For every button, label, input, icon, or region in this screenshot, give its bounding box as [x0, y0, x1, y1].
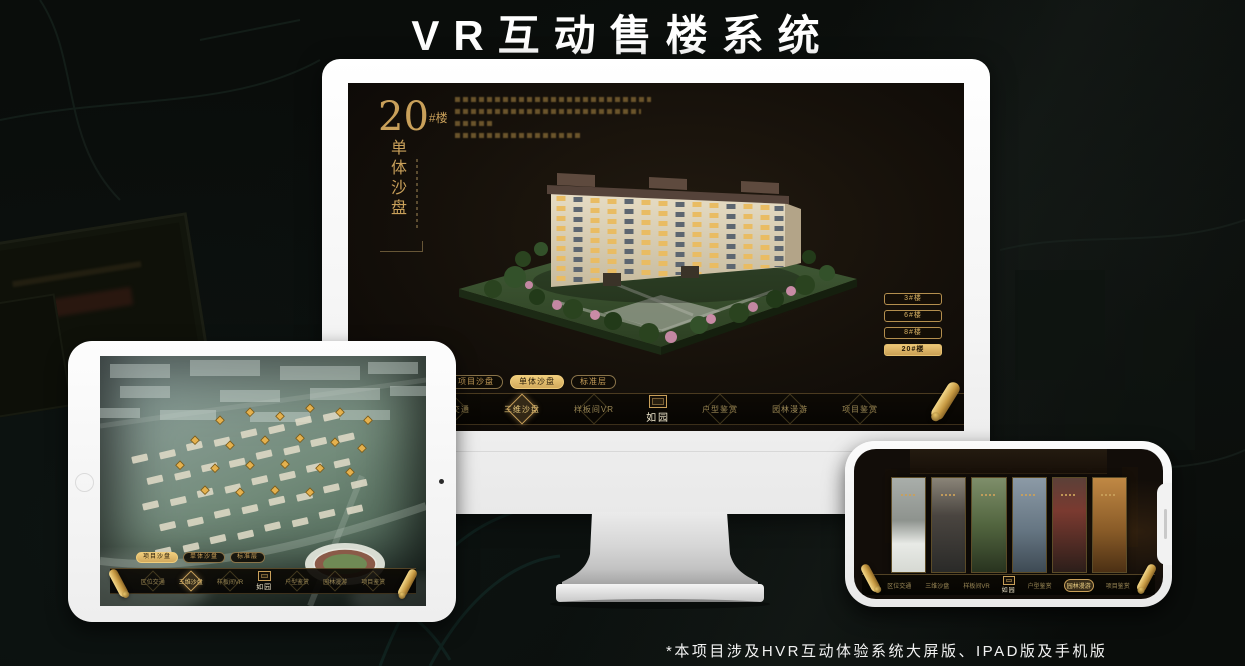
brand-logo-icon: [649, 395, 667, 408]
phone-notch: [1157, 483, 1172, 565]
brand-logo[interactable]: 如园: [1002, 576, 1016, 594]
phone-bottom-nav: 区位交通 三维沙盘 样板间VR 如园 户型鉴赏 园林漫游 项目鉴赏: [862, 574, 1155, 595]
nav-item-garden-roam[interactable]: 园林漫游: [322, 576, 348, 587]
block-number-suffix: #楼: [429, 111, 448, 125]
page-title: VR互动售楼系统: [0, 2, 1245, 63]
block-subtitle: 单体沙盘: [384, 139, 408, 223]
tablet-mockup: 项目沙盘 单体沙盘 标准层 区位交通 三维沙盘 样板间VR 如园 户型鉴赏 园林…: [68, 341, 456, 622]
nav-item-project-gallery[interactable]: 项目鉴赏: [360, 576, 386, 587]
floor-selector: 3#楼 6#楼 8#楼 20#楼: [884, 293, 942, 361]
tablet-bottom-nav: 区位交通 三维沙盘 样板间VR 如园 户型鉴赏 园林漫游 项目鉴赏: [110, 568, 416, 594]
scene-panel-garden[interactable]: [971, 477, 1006, 573]
brand-logo-icon: [258, 571, 271, 581]
nav-item-3d-sandtable[interactable]: 三维沙盘: [178, 576, 204, 587]
scene-panel-lounge[interactable]: [1052, 477, 1087, 573]
scene-panel-building[interactable]: [1012, 477, 1047, 573]
nav-item-floorplans[interactable]: 户型鉴赏: [284, 576, 310, 587]
nav-item-3d-sandtable[interactable]: 三维沙盘: [923, 580, 951, 591]
tablet-home-button[interactable]: [75, 473, 94, 492]
interior-beam: [910, 449, 1108, 474]
brand-logo[interactable]: 如园: [256, 571, 272, 592]
brand-logo-text: 如园: [1002, 585, 1016, 594]
floor-button-8[interactable]: 8#楼: [884, 327, 942, 339]
nav-item-3d-sandtable[interactable]: 三维沙盘: [502, 402, 542, 417]
scene-panel-interior[interactable]: [931, 477, 966, 573]
subtab-standard-floor[interactable]: 标准层: [571, 375, 616, 389]
floor-button-3[interactable]: 3#楼: [884, 293, 942, 305]
phone-mockup: 区位交通 三维沙盘 样板间VR 如园 户型鉴赏 园林漫游 项目鉴赏: [845, 441, 1172, 607]
nav-item-project-gallery[interactable]: 项目鉴赏: [840, 402, 880, 417]
scene-panel-study[interactable]: [1092, 477, 1127, 573]
nav-item-showroom-vr[interactable]: 样板间VR: [216, 576, 244, 587]
tablet-subtabs: 项目沙盘 单体沙盘 标准层: [136, 552, 265, 563]
nav-item-location[interactable]: 区位交通: [885, 580, 913, 591]
subtab-single-sandtable[interactable]: 单体沙盘: [510, 375, 564, 389]
subtab-project-sandtable[interactable]: 项目沙盘: [449, 375, 503, 389]
nav-item-project-gallery[interactable]: 项目鉴赏: [1104, 580, 1132, 591]
tablet-subtab-project-sandtable[interactable]: 项目沙盘: [136, 552, 178, 563]
nav-item-garden-roam[interactable]: 园林漫游: [770, 402, 810, 417]
scene-panel-gallery: [891, 477, 1127, 573]
tablet-subtab-standard-floor[interactable]: 标准层: [230, 552, 265, 563]
nav-item-location[interactable]: 区位交通: [140, 576, 166, 587]
floor-button-20[interactable]: 20#楼: [884, 344, 942, 356]
block-number: 20: [378, 94, 429, 140]
block-headline: 20#楼 单体沙盘: [378, 97, 453, 223]
scroll-menu-icon[interactable]: [929, 380, 962, 423]
scene-panel-courtyard[interactable]: [891, 477, 926, 573]
floor-button-6[interactable]: 6#楼: [884, 310, 942, 322]
text-line: [455, 109, 641, 114]
brand-logo-text: 如园: [256, 582, 272, 592]
plaque-faint-text-row: [12, 261, 141, 287]
building-3d-render[interactable]: [453, 163, 863, 361]
brand-logo[interactable]: 如园: [646, 395, 670, 424]
nav-item-floorplans[interactable]: 户型鉴赏: [1026, 580, 1054, 591]
headline-bracket-line: [380, 241, 423, 252]
background-buildings: [975, 250, 1245, 470]
tablet-camera-icon: [439, 479, 444, 484]
footnote: *本项目涉及HVR互动体验系统大屏版、IPAD版及手机版: [666, 640, 1107, 661]
nav-item-floorplans[interactable]: 户型鉴赏: [700, 402, 740, 417]
monitor-stand: [540, 512, 780, 612]
sandtable-subtabs: 项目沙盘 单体沙盘 标准层: [449, 375, 616, 389]
text-line: [455, 121, 493, 126]
brand-logo-text: 如园: [646, 409, 670, 424]
brand-logo-icon: [1003, 576, 1015, 585]
phone-screen: 区位交通 三维沙盘 样板间VR 如园 户型鉴赏 园林漫游 项目鉴赏: [854, 449, 1163, 599]
nav-item-garden-roam[interactable]: 园林漫游: [1064, 579, 1094, 592]
tablet-subtab-single-sandtable[interactable]: 单体沙盘: [183, 552, 225, 563]
text-line: [455, 133, 581, 138]
nav-item-showroom-vr[interactable]: 样板间VR: [961, 580, 991, 591]
tablet-screen: 项目沙盘 单体沙盘 标准层 区位交通 三维沙盘 样板间VR 如园 户型鉴赏 园林…: [100, 356, 426, 606]
text-line: [455, 97, 651, 102]
nav-item-showroom-vr[interactable]: 样板间VR: [572, 402, 616, 417]
description-paragraph: [455, 97, 665, 145]
subtitle-english-caption: [416, 159, 418, 229]
phone-speaker-icon: [1164, 509, 1167, 539]
